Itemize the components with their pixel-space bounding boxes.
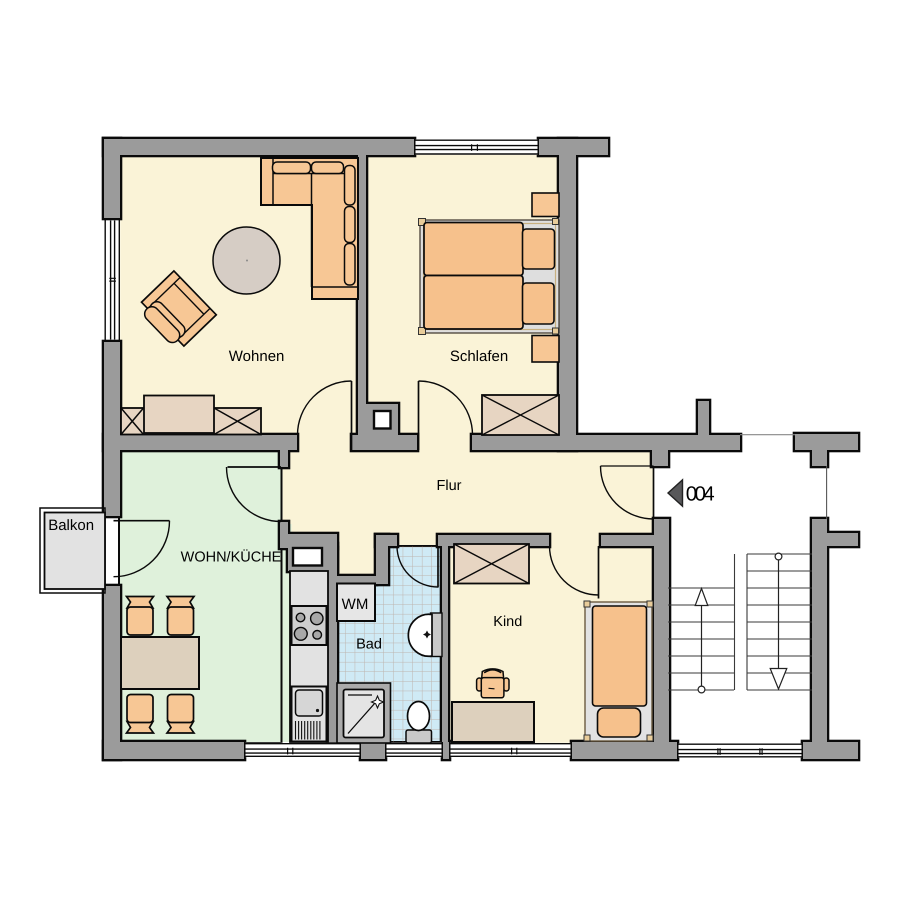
svg-text:004: 004 [686, 483, 715, 506]
svg-text:WM: WM [342, 596, 369, 613]
svg-text:WOHN/KÜCHE: WOHN/KÜCHE [181, 549, 282, 566]
svg-text:Balkon: Balkon [48, 517, 94, 534]
svg-text:Schlafen: Schlafen [450, 348, 508, 365]
svg-text:Kind: Kind [493, 614, 522, 630]
svg-text:Wohnen: Wohnen [229, 348, 285, 365]
svg-text:Flur: Flur [437, 478, 462, 494]
svg-text:Bad: Bad [356, 637, 382, 653]
